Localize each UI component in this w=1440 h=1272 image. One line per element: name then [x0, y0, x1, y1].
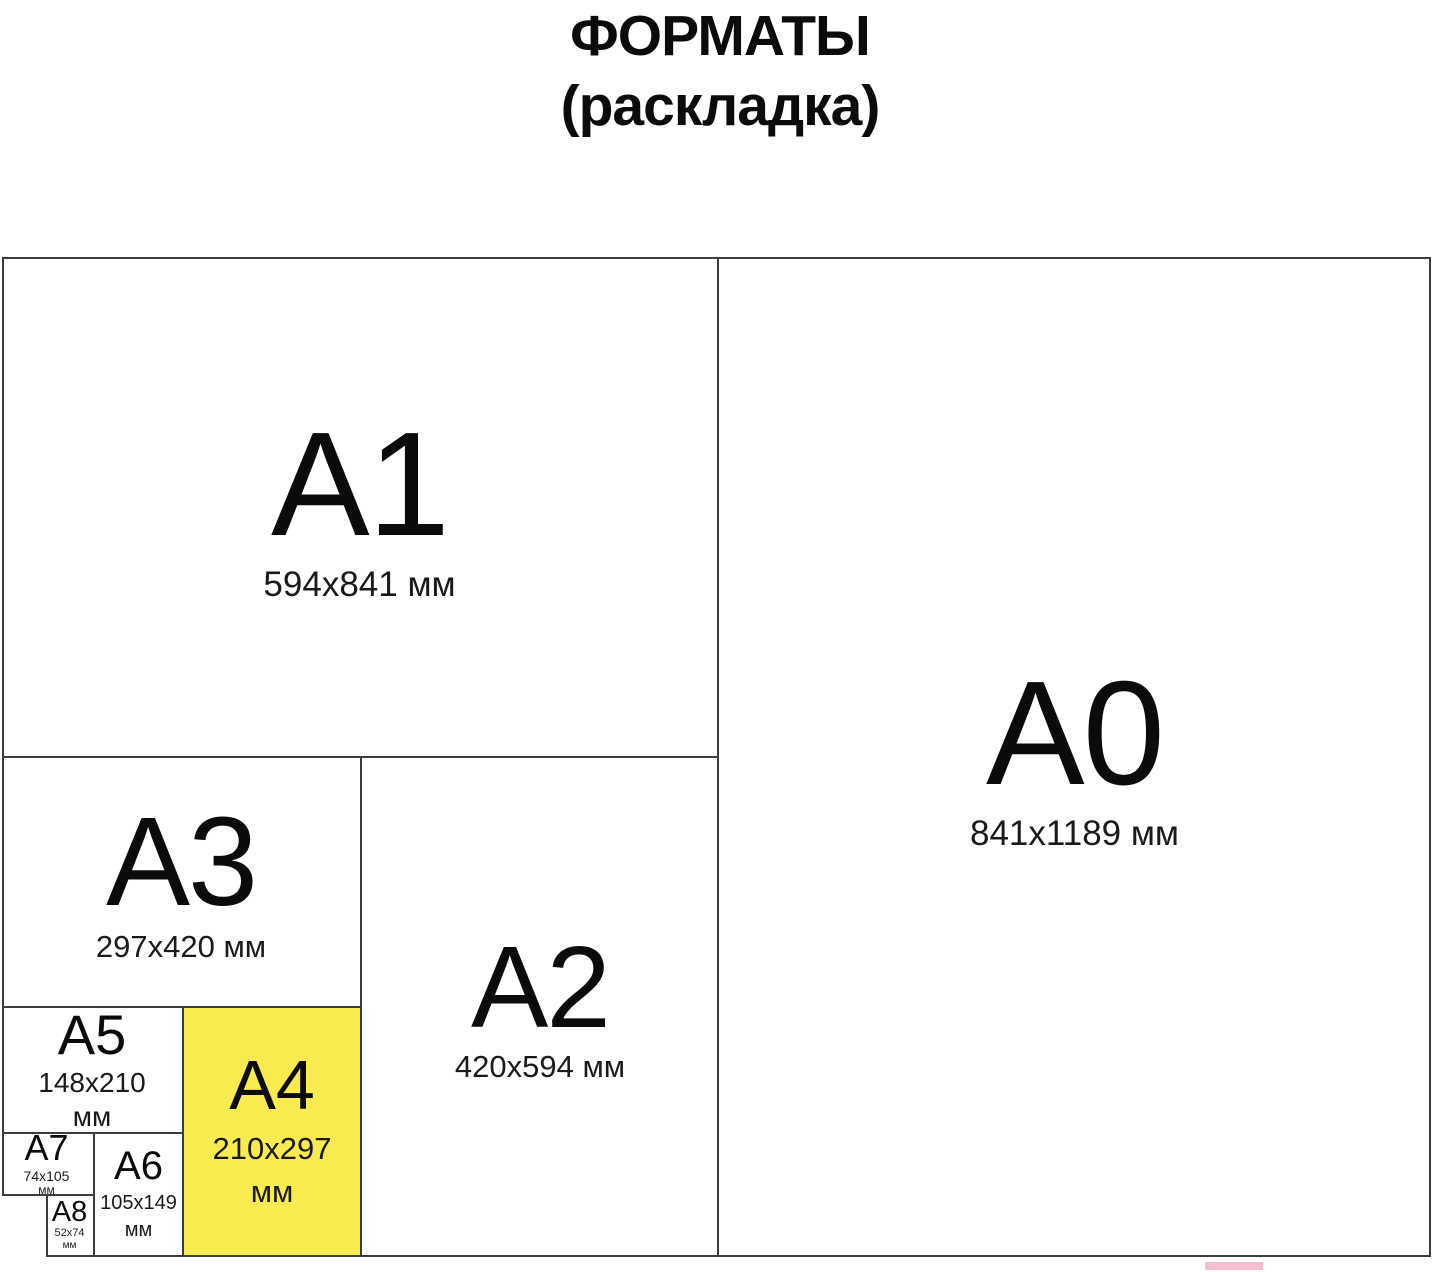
format-dims-a4: 210x297: [213, 1128, 332, 1171]
format-cell-a5: A5 148x210 мм: [2, 1008, 182, 1132]
format-label-a3: A3: [106, 799, 256, 925]
format-label-a6: A6: [114, 1146, 163, 1186]
format-dims-unit-a8: мм: [63, 1240, 77, 1252]
format-cell-a4-highlighted: A4 210x297 мм: [184, 1008, 360, 1255]
format-cell-a7: A7 74x105 мм: [2, 1135, 91, 1194]
format-label-a2: A2: [471, 929, 609, 1045]
diagram-title-line2: (раскладка): [0, 72, 1440, 142]
format-label-a4: A4: [229, 1050, 315, 1120]
format-cell-a1: A1 594x841 мм: [2, 259, 717, 756]
format-label-a0: A0: [986, 660, 1163, 808]
diagram-title-line1: ФОРМАТЫ: [0, 2, 1440, 72]
format-cell-a6: A6 105x149 мм: [95, 1135, 182, 1255]
format-dims-a0: 841x1189 мм: [970, 814, 1179, 854]
format-label-a5: A5: [58, 1007, 127, 1063]
format-cell-a3: A3 297x420 мм: [2, 758, 360, 1006]
pink-watermark-strip: [1205, 1262, 1263, 1270]
divider-a7-bottom-line: [2, 1194, 95, 1196]
format-dims-a6: 105x149: [100, 1190, 177, 1217]
outer-border-left-line: [2, 257, 4, 1196]
format-dims-a3: 297x420 мм: [96, 929, 266, 965]
divider-a8-left-line: [46, 1194, 48, 1257]
format-cell-a0: A0 841x1189 мм: [719, 259, 1430, 1255]
format-label-a8: A8: [52, 1199, 87, 1227]
outer-border-bottom-line: [46, 1255, 1431, 1257]
format-dims-unit-a4: мм: [251, 1171, 294, 1214]
outer-border-right-line: [1429, 257, 1431, 1257]
format-dims-a1: 594x841 мм: [263, 565, 455, 605]
format-cell-a2: A2 420x594 мм: [363, 758, 717, 1255]
format-dims-a8: 52x74: [55, 1227, 85, 1240]
format-label-a7: A7: [24, 1131, 68, 1165]
format-dims-unit-a6: мм: [125, 1217, 153, 1244]
format-dims-unit-a5: мм: [73, 1100, 112, 1133]
format-cell-a8: A8 52x74 мм: [48, 1196, 91, 1255]
format-dims-a2: 420x594 мм: [455, 1049, 625, 1085]
format-label-a1: A1: [271, 411, 448, 559]
format-dims-a5: 148x210: [38, 1066, 145, 1099]
diagram-title: ФОРМАТЫ (раскладка): [0, 2, 1440, 141]
format-dims-a7: 74x105: [24, 1168, 70, 1184]
